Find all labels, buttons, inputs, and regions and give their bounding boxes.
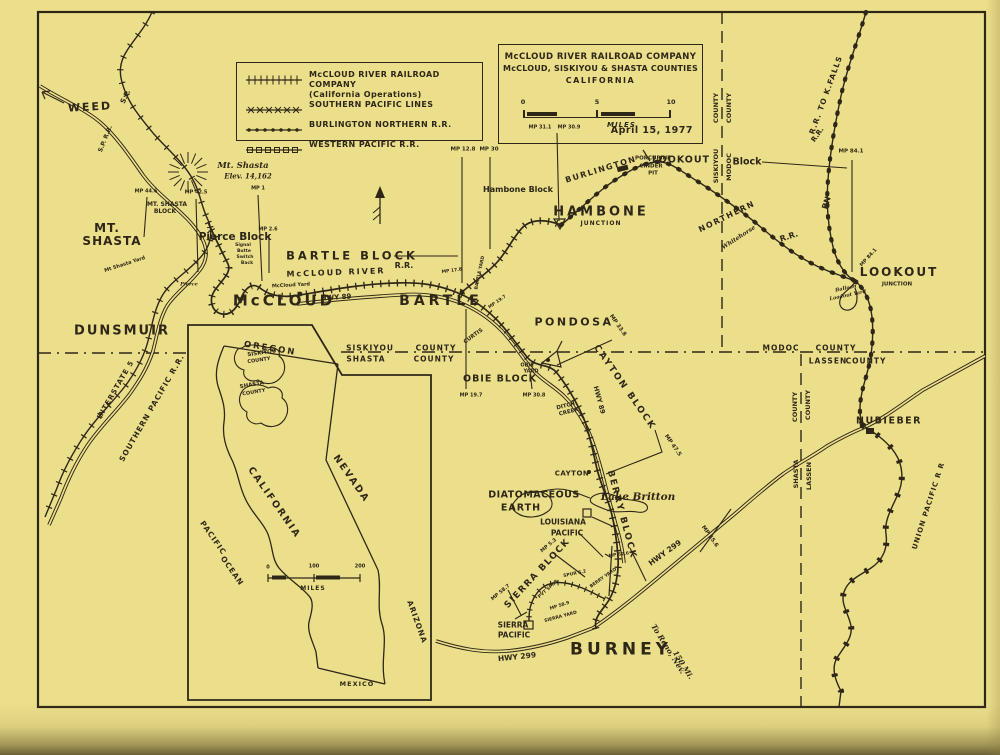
- signal-butte: Signal: [235, 244, 251, 249]
- county-shasta: SHASTA: [346, 355, 385, 363]
- county-siskiyou-v: SISKIYOU: [713, 149, 720, 184]
- legend-symbol: [245, 121, 303, 140]
- map-page: McCLOUD RIVER RAILROAD COMPANY(Californi…: [0, 0, 1000, 755]
- block-obie: OBIE BLOCK: [463, 374, 537, 384]
- ticks-line-symbol: [245, 74, 303, 86]
- inset-arizona-border: [378, 570, 385, 684]
- milepost-30-9: MP 30.9: [558, 126, 581, 131]
- legend-item: SOUTHERN PACIFIC LINES: [245, 100, 474, 120]
- porcupine-pit: PORCUPINE: [635, 156, 671, 162]
- hambone-junction: JUNCTION: [581, 221, 622, 227]
- scale-tick-5: 5: [595, 98, 600, 106]
- town-pondosa: PONDOSA: [534, 317, 613, 328]
- roads: [40, 86, 985, 652]
- signal-butte-2: Butte: [237, 250, 251, 255]
- town-mt-shasta: MT.: [94, 222, 120, 234]
- scale-tick-0: 0: [521, 98, 526, 106]
- town-mt-shasta-2: SHASTA: [82, 235, 141, 247]
- inset-mexico: MEXICO: [340, 681, 375, 688]
- legend-symbol: [245, 141, 303, 160]
- county-word-7: COUNTY: [792, 392, 799, 422]
- inset-scale-0: 0: [266, 566, 269, 571]
- town-bartle: BARTLE: [399, 294, 483, 308]
- station-obie-2: YARD: [523, 370, 538, 375]
- legend-sublabel: (California Operations): [309, 90, 474, 100]
- rr-mccloud-line: [208, 219, 857, 629]
- inset-nevada-border: [326, 364, 378, 570]
- map-subtitle: McCLOUD, SISKIYOU & SHASTA COUNTIES: [499, 64, 702, 73]
- county-word-4: COUNTY: [846, 357, 887, 365]
- milepost-2-6: MP 2.6: [258, 228, 277, 233]
- inset-scale-100: 100: [309, 565, 319, 570]
- map-title: McCLOUD RIVER RAILROAD COMPANY: [499, 52, 702, 62]
- legend-symbol: [245, 71, 303, 90]
- scale-bar: 0 5 10: [523, 107, 671, 118]
- legend-label: McCLOUD RIVER RAILROAD COMPANY(Californi…: [309, 70, 474, 100]
- county-shasta-v: SHASTA: [793, 460, 800, 489]
- porcupine-pit-3: PIT: [648, 171, 658, 177]
- county-lassen: LASSEN: [809, 357, 847, 365]
- legend-box: McCLOUD RIVER RAILROAD COMPANY(Californi…: [236, 62, 483, 141]
- milepost-30-8: MP 30.8: [523, 394, 546, 399]
- county-modoc: MODOC: [763, 344, 800, 352]
- milepost-42-5: MP 42.5: [185, 191, 208, 196]
- block-lookout-2: Block: [733, 157, 762, 167]
- legend-label: BURLINGTON NORTHERN R.R.: [309, 120, 452, 130]
- town-nubieber: NUBIEBER: [856, 416, 922, 426]
- legend-symbol: [245, 101, 303, 120]
- legend-label: SOUTHERN PACIFIC LINES: [309, 100, 433, 110]
- milepost-30: MP 30: [479, 147, 498, 153]
- county-word-2: COUNTY: [414, 355, 455, 363]
- town-hambone: HAMBONE: [553, 206, 649, 219]
- diatomaceous-earth: DIATOMACEOUS: [488, 490, 580, 500]
- milepost-1: MP 1: [251, 187, 265, 192]
- mt-shasta-peak: Mt. Shasta: [217, 162, 268, 171]
- county-modoc-v: MODOC: [726, 153, 733, 181]
- legend-item: WESTERN PACIFIC R.R.: [245, 140, 474, 160]
- station-cayton: CAYTON: [555, 471, 590, 478]
- signal-butte-3: Switch: [237, 256, 254, 261]
- north-arrow: [373, 186, 385, 224]
- scale-tick-10: 10: [666, 98, 675, 106]
- milepost-19-7b: MP 19.7: [460, 394, 483, 399]
- county-word-3: COUNTY: [816, 344, 857, 352]
- map-subtitle-state: CALIFORNIA: [499, 76, 702, 85]
- diatomaceous-earth-2: EARTH: [501, 503, 541, 513]
- louisiana-pacific: LOUISIANA: [540, 518, 586, 526]
- county-word-5: COUNTY: [713, 93, 720, 123]
- county-lassen-v: LASSEN: [806, 462, 813, 490]
- inset-coastline: [216, 346, 318, 668]
- milepost-44-6: MP 44.6: [135, 190, 158, 195]
- legend-item: McCLOUD RIVER RAILROAD COMPANY(Californi…: [245, 70, 474, 100]
- town-dunsmuir: DUNSMUIR: [74, 325, 170, 338]
- rr-mccloud-river-2: R.R.: [395, 262, 414, 270]
- inset-scale-200: 200: [355, 565, 365, 570]
- rr-up-line: [834, 425, 902, 707]
- map-date: April 15, 1977: [611, 125, 693, 136]
- town-burney: BURNEY: [570, 642, 672, 659]
- county-word-8: COUNTY: [805, 390, 812, 420]
- milepost-12-8: MP 12.8: [451, 147, 476, 153]
- louisiana-pacific-2: PACIFIC: [551, 529, 583, 537]
- station-pierce: Pierce: [180, 283, 198, 288]
- mt-shasta-elev: Elev. 14,162: [224, 173, 271, 180]
- roads-inner: [40, 86, 985, 652]
- legend-item: BURLINGTON NORTHERN R.R.: [245, 120, 474, 140]
- milepost-31-1: MP 31.1: [529, 126, 552, 131]
- county-word-6: COUNTY: [726, 93, 733, 123]
- lookout-junction: JUNCTION: [882, 282, 912, 288]
- milepost-84-1: MP 84.1: [839, 149, 864, 155]
- squares-line-symbol: [245, 144, 303, 156]
- xmarks-line-symbol: [245, 104, 303, 116]
- legend-label: WESTERN PACIFIC R.R.: [309, 140, 420, 150]
- inset-map-outline: [188, 325, 431, 700]
- signal-butte-4: Back: [241, 262, 253, 267]
- town-lookout: LOOKOUT: [860, 266, 939, 278]
- sierra-pacific-2: PACIFIC: [498, 631, 530, 639]
- inset-scale-miles: MILES: [300, 586, 325, 592]
- block-hambone: Hambone Block: [483, 186, 553, 194]
- dots-line-symbol: [245, 124, 303, 136]
- porcupine-pit-2: CINDER: [639, 164, 662, 170]
- town-weed: WEED: [68, 100, 113, 113]
- sierra-pacific: SIERRA: [498, 621, 529, 629]
- county-siskiyou: SISKIYOU: [346, 344, 394, 352]
- block-mt-shasta-2: BLOCK: [154, 209, 176, 215]
- county-word-1: COUNTY: [416, 344, 457, 352]
- block-pierce: Pierce Block: [199, 232, 272, 243]
